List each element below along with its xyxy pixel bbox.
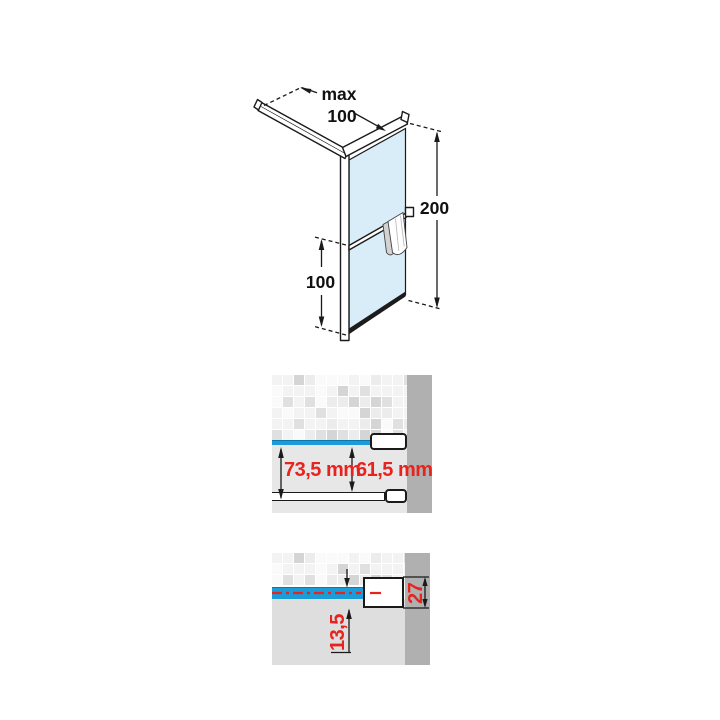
mosaic-tile [305,375,315,385]
mosaic-tile [371,553,381,563]
mosaic-tile [393,564,403,574]
mosaic-tile [294,419,304,429]
mosaic-tile [327,553,337,563]
mosaic-tile [327,408,337,418]
dim-inner-offset-label: 61,5 mm [356,459,433,482]
mosaic-tile [272,386,282,396]
wall-profile [341,151,350,341]
mosaic-tile [393,408,403,418]
mosaic-tiles [272,375,407,440]
mosaic-tile [382,553,392,563]
mosaic-tile [371,419,381,429]
mosaic-tile [360,564,370,574]
mosaic-tile [371,375,381,385]
mosaic-tile [371,386,381,396]
mosaic-tile [316,564,326,574]
mosaic-tile [360,397,370,407]
mosaic-tile [382,419,392,429]
isometric-diagram: max 100 200 100 [250,70,460,360]
mosaic-tile [338,408,348,418]
mosaic-tile [327,375,337,385]
mosaic-tile [382,375,392,385]
glass-edge-plan [272,440,370,445]
mosaic-tile [393,397,403,407]
mosaic-tile [272,408,282,418]
glass-edge-section [272,587,363,599]
mosaic-tile [272,575,282,585]
mosaic-tile [349,397,359,407]
mosaic-tile [294,408,304,418]
mosaic-tile [316,397,326,407]
mosaic-tile [283,375,293,385]
mosaic-tile [283,553,293,563]
mosaic-tile [338,419,348,429]
mosaic-tile [272,375,282,385]
mosaic-tile [305,430,315,440]
mosaic-tile [338,564,348,574]
mosaic-tile [327,564,337,574]
mosaic-tile [371,397,381,407]
mosaic-tile [283,564,293,574]
mosaic-tile [294,553,304,563]
mosaic-tile [272,397,282,407]
section-view-diagram: 13,5 27 [272,553,430,665]
mosaic-tile [294,575,304,585]
mosaic-tile [360,553,370,563]
mosaic-tile [338,430,348,440]
mosaic-tile [349,419,359,429]
mosaic-tile [371,408,381,418]
mosaic-tile [360,375,370,385]
mosaic-tile [316,553,326,563]
mosaic-tile [305,575,315,585]
mosaic-tile [272,564,282,574]
mosaic-tile [316,386,326,396]
dim-outer-offset-label: 73,5 mm [284,459,361,482]
mosaic-tile [360,386,370,396]
mosaic-tile [283,386,293,396]
mosaic-tile [382,386,392,396]
mosaic-tile [283,430,293,440]
dim-bar-length-value: 100 [327,106,356,126]
mosaic-tile [283,575,293,585]
mosaic-tile [382,564,392,574]
mosaic-tile [283,419,293,429]
mosaic-tile [327,575,337,585]
mosaic-tile [294,397,304,407]
mosaic-tile [393,375,403,385]
bar-wall-fitting [385,489,407,503]
mosaic-tile [349,408,359,418]
towel-bar-bracket [406,208,414,217]
mosaic-tile [316,375,326,385]
mosaic-tile [305,386,315,396]
glass-wall-bracket [370,433,407,450]
mosaic-tile [360,430,370,440]
mosaic-tile [349,430,359,440]
mosaic-tile [283,408,293,418]
mosaic-tile [272,430,282,440]
side-wall [405,553,430,665]
mosaic-tile [305,408,315,418]
floor-area [272,599,405,665]
dim-bar-length-label: max [321,84,356,104]
wall-profile-section [363,577,404,608]
mosaic-tile [349,386,359,396]
mosaic-tile [393,419,403,429]
mosaic-tile [272,553,282,563]
mosaic-tile [316,419,326,429]
mosaic-tile [294,564,304,574]
mosaic-tile [327,397,337,407]
mosaic-tile [349,575,359,585]
dim-panel-height: 200 [409,124,450,310]
plan-view-diagram: 73,5 mm 61,5 mm [272,375,432,513]
mosaic-tile [294,430,304,440]
mosaic-tile [360,408,370,418]
mosaic-tile [305,564,315,574]
mosaic-tile [294,375,304,385]
mosaic-tile [272,419,282,429]
mosaic-tile [338,375,348,385]
mosaic-tile [305,397,315,407]
dim-lower-glass-value: 100 [306,272,335,292]
support-bar-plan [272,492,385,501]
mosaic-tile [338,397,348,407]
mosaic-tile [349,564,359,574]
mosaic-tile [382,397,392,407]
mosaic-tile [327,386,337,396]
mosaic-tile [316,430,326,440]
mosaic-tile [283,397,293,407]
mosaic-tile [294,386,304,396]
mosaic-tile [316,408,326,418]
mosaic-tile [327,430,337,440]
mosaic-tile [371,564,381,574]
technical-drawing-page: max 100 200 100 [0,0,720,720]
mosaic-tile [338,575,348,585]
mosaic-tile [327,419,337,429]
mosaic-tile [338,386,348,396]
mosaic-tile [393,386,403,396]
mosaic-tile [360,419,370,429]
side-wall [407,375,432,513]
mosaic-tile [338,553,348,563]
mosaic-tile [382,408,392,418]
mosaic-tile [349,375,359,385]
mosaic-tile [305,553,315,563]
mosaic-tile [393,553,403,563]
dim-panel-height-value: 200 [420,198,449,218]
mosaic-tile [349,553,359,563]
mosaic-tile [316,575,326,585]
mosaic-tile [305,419,315,429]
